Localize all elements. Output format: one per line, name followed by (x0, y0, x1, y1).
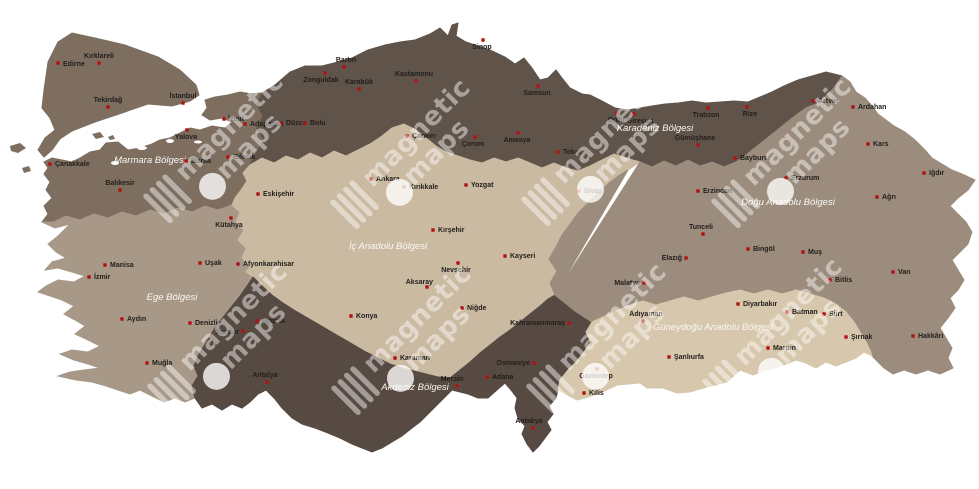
city-label-kutahya: Kütahya (215, 222, 243, 229)
city-label-usak: Uşak (205, 260, 222, 267)
city-label-sinop: Sinop (472, 44, 491, 51)
city-dot-mugla (145, 361, 148, 364)
city-label-kirsehir: Kırşehir (438, 227, 465, 234)
city-label-sanliurfa: Şanlıurfa (674, 354, 704, 361)
city-label-nigde: Niğde (467, 305, 487, 312)
city-dot-tokat (556, 150, 559, 153)
city-dot-afyonkarahisar (236, 262, 239, 265)
city-dot-mus (801, 250, 804, 253)
city-dot-usak (198, 261, 201, 264)
city-label-yozgat: Yozgat (471, 182, 494, 189)
city-label-kars: Kars (873, 141, 889, 148)
city-label-manisa: Manisa (110, 262, 134, 269)
city-dot-adana (485, 375, 488, 378)
city-dot-sanliurfa (667, 355, 670, 358)
city-label-izmir: İzmir (94, 273, 111, 281)
city-dot-manisa (103, 263, 106, 266)
city-dot-kirklareli (97, 61, 100, 64)
city-label-balikesir: Balıkesir (105, 180, 134, 187)
city-dot-erzincan (696, 189, 699, 192)
city-label-elazig: Elazığ (662, 255, 682, 262)
city-dot-istanbul (181, 101, 184, 104)
city-dot-kirsehir (431, 228, 434, 231)
city-dot-yalova (185, 128, 188, 131)
city-dot-bolu (303, 121, 306, 124)
city-label-konya: Konya (356, 313, 378, 320)
city-label-kayseri: Kayseri (510, 253, 535, 260)
city-dot-kars (866, 142, 869, 145)
city-label-agri: Ağrı (882, 194, 896, 201)
city-label-igdir: Iğdır (929, 170, 944, 177)
city-label-mus: Muş (808, 249, 822, 256)
city-dot-kastamonu (414, 79, 417, 82)
city-label-kastamonu: Kastamonu (395, 71, 433, 78)
island (108, 135, 115, 140)
city-label-zonguldak: Zonguldak (303, 77, 338, 84)
city-dot-sirnak (844, 335, 847, 338)
city-label-van: Van (898, 269, 910, 276)
city-label-kilis: Kilis (589, 390, 604, 397)
city-dot-yozgat (464, 183, 467, 186)
city-label-trabzon: Trabzon (693, 112, 720, 119)
city-dot-sinop (481, 38, 484, 41)
city-dot-gumushane (696, 143, 699, 146)
city-label-ardahan: Ardahan (858, 104, 886, 111)
city-dot-aydin (120, 317, 123, 320)
city-label-osmaniye: Osmaniye (497, 360, 531, 367)
city-label-sirnak: Şırnak (851, 334, 873, 341)
city-dot-amasya (516, 131, 519, 134)
city-label-eskisehir: Eskişehir (263, 191, 294, 198)
city-label-adana: Adana (492, 374, 514, 381)
island (92, 132, 104, 139)
lake (137, 146, 147, 150)
city-label-hakkari: Hakkâri (918, 333, 943, 340)
city-dot-mersin (455, 384, 458, 387)
city-dot-trabzon (706, 106, 709, 109)
city-dot-canakkale (48, 162, 51, 165)
region-label-ege: Ege Bölgesi (147, 292, 199, 303)
city-dot-antakya (531, 426, 534, 429)
city-dot-agri (875, 195, 878, 198)
city-dot-izmir (87, 275, 90, 278)
city-dot-elazig (684, 256, 687, 259)
city-label-tekirdag: Tekirdağ (94, 97, 123, 104)
city-dot-eskisehir (256, 192, 259, 195)
city-label-gumushane: Gümüşhane (675, 135, 716, 142)
city-dot-samsun (536, 84, 539, 87)
city-dot-bartin (342, 65, 345, 68)
city-dot-bingol (746, 247, 749, 250)
city-label-tunceli: Tunceli (689, 224, 713, 231)
city-label-mersin: Mersin (441, 376, 464, 383)
city-dot-antalya (265, 380, 268, 383)
island (10, 143, 26, 153)
city-dot-kutahya (229, 216, 232, 219)
city-label-kahramanmaras: Kahramanmaraş (510, 320, 565, 327)
city-dot-kilis (582, 391, 585, 394)
city-label-samsun: Samsun (523, 90, 550, 97)
city-dot-tekirdag (106, 105, 109, 108)
city-dot-bayburt (733, 156, 736, 159)
city-label-karabuk: Karabük (345, 79, 373, 86)
city-dot-hakkari (911, 334, 914, 337)
city-dot-diyarbakir (736, 302, 739, 305)
city-label-bingol: Bingöl (753, 246, 775, 253)
turkey-regions-map-svg: Marmara BölgesiEge BölgesiKaradeniz Bölg… (0, 0, 979, 489)
city-label-aydin: Aydın (127, 316, 146, 323)
city-dot-konya (349, 314, 352, 317)
city-dot-osmaniye (532, 361, 535, 364)
city-dot-igdir (922, 171, 925, 174)
city-label-antakya: Antakya (515, 418, 542, 425)
city-dot-tunceli (701, 232, 704, 235)
city-dot-karabuk (357, 87, 360, 90)
city-label-bartin: Bartın (336, 57, 356, 64)
city-dot-van (891, 270, 894, 273)
city-dot-zonguldak (323, 71, 326, 74)
city-dot-rize (745, 105, 748, 108)
lake (166, 139, 174, 143)
island (22, 166, 31, 173)
city-label-rize: Rize (743, 111, 758, 118)
city-dot-ardahan (851, 105, 854, 108)
city-label-kirklareli: Kırklareli (84, 53, 114, 60)
turkey-regions-map: Marmara BölgesiEge BölgesiKaradeniz Bölg… (0, 0, 979, 489)
city-label-edirne: Edirne (63, 61, 85, 68)
city-label-antalya: Antalya (252, 372, 277, 379)
city-label-canakkale: Çanakkale (55, 161, 90, 168)
city-label-bolu: Bolu (310, 120, 326, 127)
city-label-amasya: Amasya (504, 137, 531, 144)
city-dot-balikesir (118, 188, 121, 191)
region-label-ic_anadolu: İç Anadolu Bölgesi (349, 241, 428, 252)
city-label-istanbul: İstanbul (170, 92, 197, 100)
city-dot-edirne (56, 61, 59, 64)
city-dot-kayseri (503, 254, 506, 257)
city-dot-kahramanmaras (567, 321, 570, 324)
city-dot-denizli (188, 321, 191, 324)
